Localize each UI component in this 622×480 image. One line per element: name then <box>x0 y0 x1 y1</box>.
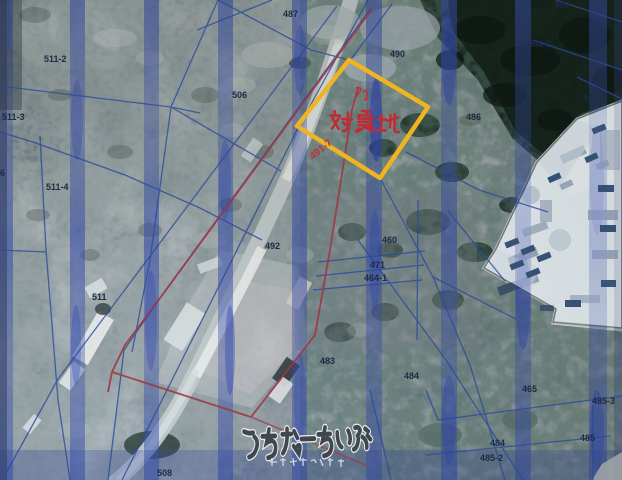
svg-text:487: 487 <box>283 9 298 19</box>
svg-text:488-2: 488-2 <box>528 39 551 49</box>
svg-text:511-4: 511-4 <box>46 182 69 192</box>
svg-text:511-2: 511-2 <box>44 54 67 64</box>
svg-text:506: 506 <box>232 90 247 100</box>
svg-text:490: 490 <box>390 49 405 59</box>
svg-text:485: 485 <box>580 433 595 443</box>
svg-text:485-2: 485-2 <box>480 453 503 463</box>
svg-text:511: 511 <box>92 292 107 302</box>
svg-text:511-3: 511-3 <box>2 112 25 122</box>
svg-text:484: 484 <box>490 438 505 448</box>
svg-text:484: 484 <box>404 371 419 381</box>
svg-text:465: 465 <box>522 384 537 394</box>
svg-text:483: 483 <box>320 356 335 366</box>
svg-text:464-1: 464-1 <box>364 273 387 283</box>
svg-text:460: 460 <box>382 235 397 245</box>
svg-text:492: 492 <box>265 241 280 251</box>
svg-text:471: 471 <box>370 260 385 270</box>
svg-text:486: 486 <box>466 112 481 122</box>
svg-text:508: 508 <box>157 468 172 478</box>
svg-text:485-3: 485-3 <box>592 396 615 406</box>
svg-text:489: 489 <box>554 0 569 10</box>
svg-text:6: 6 <box>0 168 5 178</box>
svg-text:487-2: 487-2 <box>583 93 606 103</box>
